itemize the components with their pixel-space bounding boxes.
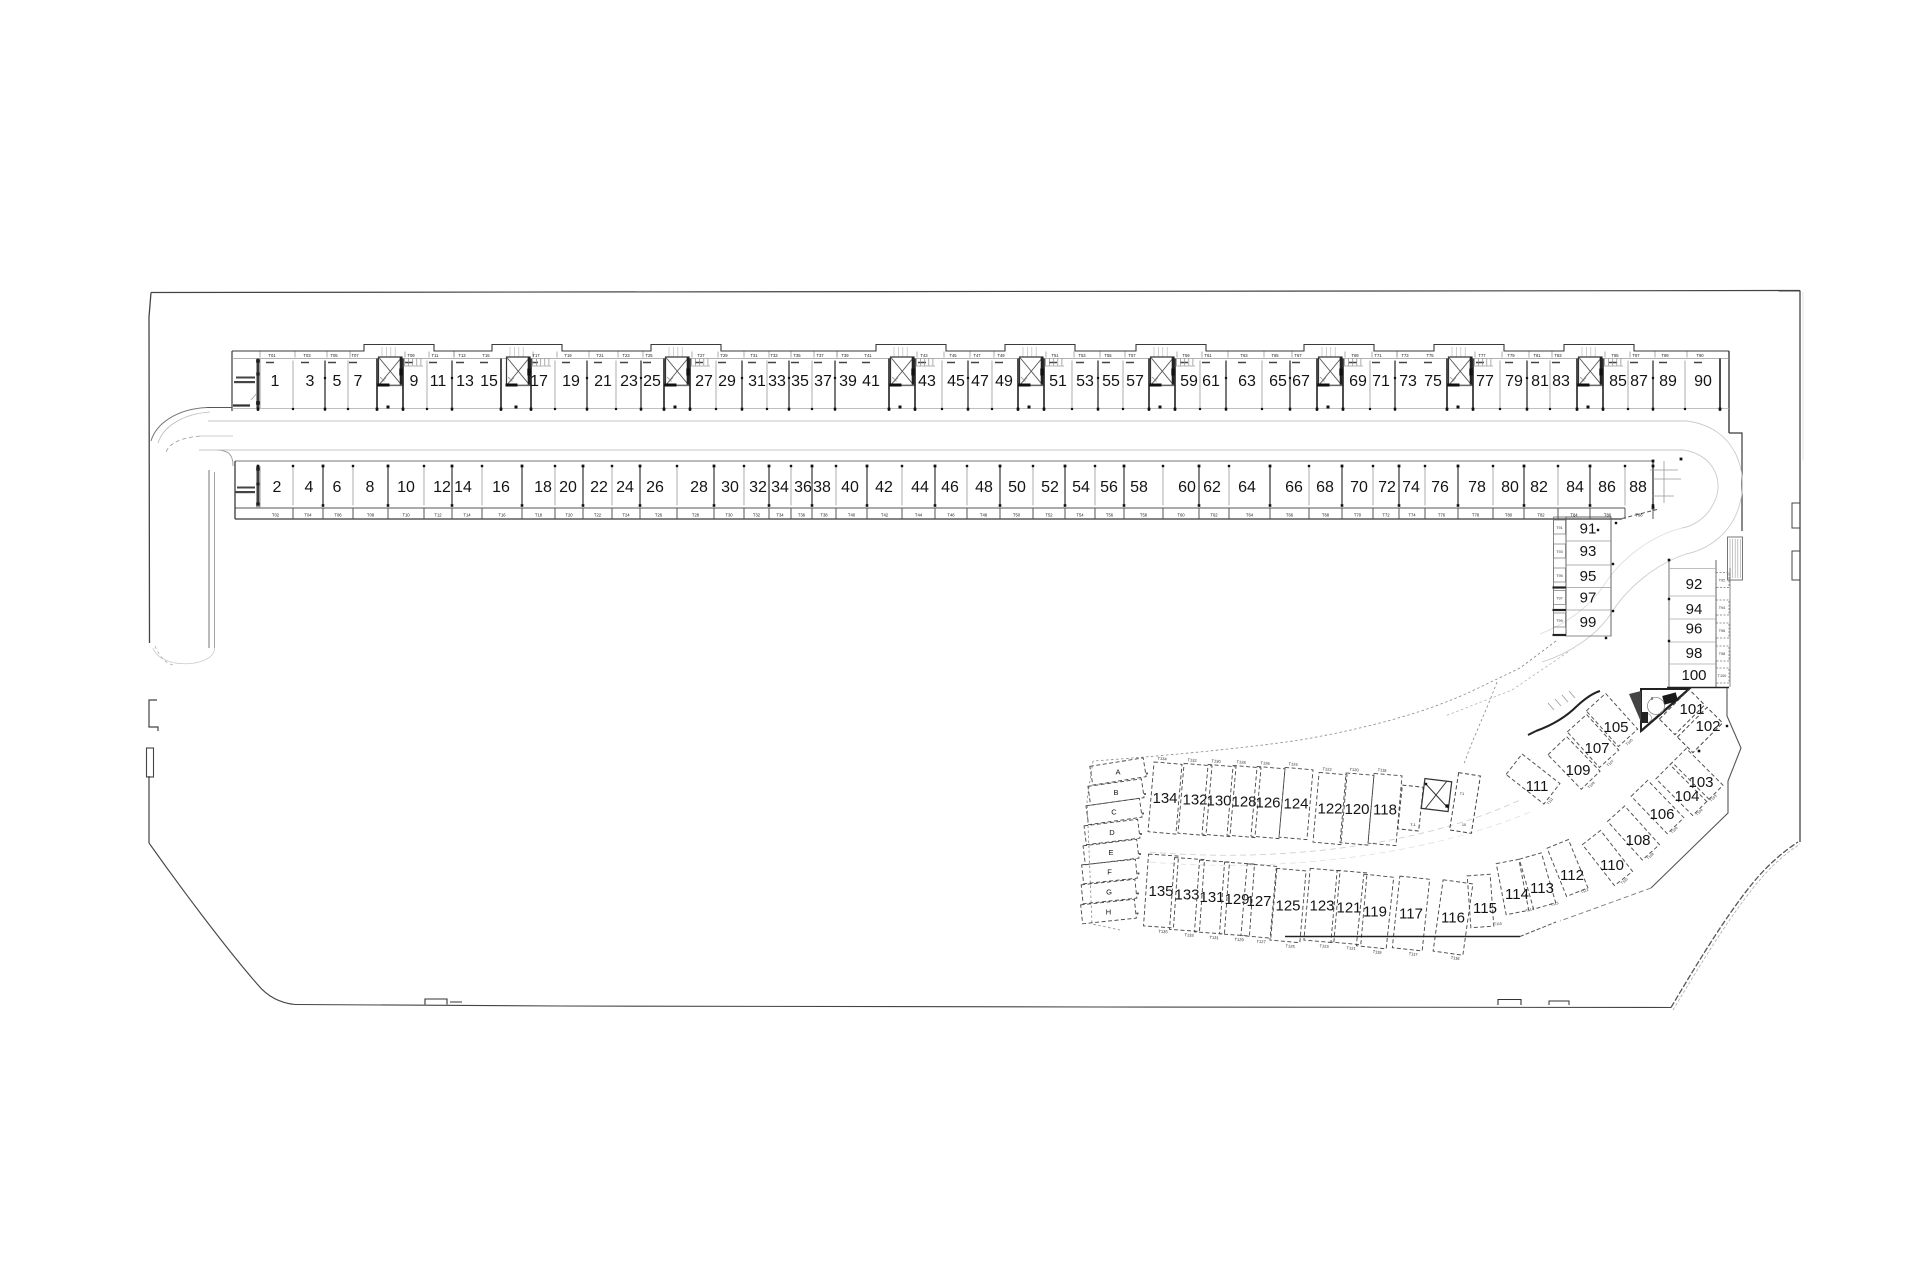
- svg-text:G: G: [1106, 888, 1112, 897]
- svg-text:T125: T125: [1285, 943, 1295, 949]
- svg-text:T81: T81: [1533, 353, 1541, 358]
- svg-text:33: 33: [768, 373, 786, 390]
- svg-text:121: 121: [1336, 900, 1361, 917]
- svg-text:T29: T29: [720, 353, 728, 358]
- svg-text:T92: T92: [1719, 579, 1726, 583]
- svg-text:T75: T75: [1426, 353, 1434, 358]
- svg-text:T46: T46: [947, 513, 955, 518]
- svg-text:T40: T40: [848, 513, 856, 518]
- svg-text:C: C: [1111, 808, 1117, 817]
- svg-text:T124: T124: [1288, 761, 1298, 767]
- svg-text:49: 49: [995, 373, 1013, 390]
- svg-text:54: 54: [1072, 479, 1090, 496]
- svg-text:71: 71: [1372, 373, 1390, 390]
- svg-text:T43: T43: [920, 353, 928, 358]
- svg-text:75: 75: [1424, 373, 1442, 390]
- svg-text:31: 31: [748, 373, 766, 390]
- svg-text:44: 44: [911, 479, 929, 496]
- svg-text:19: 19: [562, 373, 580, 390]
- svg-text:T80: T80: [1505, 513, 1513, 518]
- svg-text:T06: T06: [334, 513, 342, 518]
- svg-text:T123: T123: [1319, 943, 1329, 949]
- svg-text:32: 32: [749, 479, 767, 496]
- svg-text:35: 35: [791, 373, 809, 390]
- svg-text:T71: T71: [1374, 353, 1382, 358]
- svg-text:T59: T59: [1182, 353, 1190, 358]
- svg-text:65: 65: [1269, 373, 1287, 390]
- svg-text:T56: T56: [1106, 513, 1114, 518]
- svg-text:T02: T02: [272, 513, 280, 518]
- svg-text:94: 94: [1686, 601, 1703, 618]
- svg-text:T82: T82: [1537, 513, 1545, 518]
- svg-text:T32: T32: [753, 513, 761, 518]
- svg-text:T38: T38: [820, 513, 828, 518]
- svg-text:36: 36: [794, 479, 812, 496]
- svg-text:106: 106: [1649, 806, 1674, 823]
- svg-text:T78: T78: [1472, 513, 1480, 518]
- svg-text:T115: T115: [1494, 922, 1502, 927]
- svg-text:4: 4: [305, 479, 314, 496]
- svg-text:86: 86: [1598, 479, 1616, 496]
- svg-text:26: 26: [646, 479, 664, 496]
- svg-text:87: 87: [1630, 373, 1648, 390]
- svg-text:18: 18: [534, 479, 552, 496]
- svg-text:T24: T24: [622, 513, 630, 518]
- svg-text:T07: T07: [351, 353, 359, 358]
- svg-text:T62: T62: [1210, 513, 1218, 518]
- svg-text:30: 30: [721, 479, 739, 496]
- svg-text:28: 28: [690, 479, 708, 496]
- svg-text:101: 101: [1679, 701, 1704, 718]
- svg-text:66: 66: [1285, 479, 1303, 496]
- svg-text:T121: T121: [1346, 945, 1356, 951]
- svg-text:25: 25: [643, 373, 661, 390]
- svg-text:61: 61: [1202, 373, 1220, 390]
- svg-text:107: 107: [1584, 740, 1609, 757]
- svg-text:64: 64: [1238, 479, 1256, 496]
- svg-text:T52: T52: [1045, 513, 1053, 518]
- svg-text:88: 88: [1629, 479, 1647, 496]
- svg-text:T36: T36: [798, 513, 806, 518]
- svg-text:T44: T44: [915, 513, 923, 518]
- svg-text:126: 126: [1255, 795, 1280, 812]
- svg-text:119: 119: [1363, 904, 1387, 921]
- svg-text:T53: T53: [1078, 353, 1086, 358]
- svg-text:73: 73: [1399, 373, 1417, 390]
- svg-text:115: 115: [1473, 900, 1497, 917]
- svg-text:13: 13: [456, 373, 474, 390]
- svg-text:118: 118: [1373, 802, 1397, 819]
- svg-text:20: 20: [559, 479, 577, 496]
- svg-text:24: 24: [616, 479, 634, 496]
- svg-text:T129: T129: [1234, 937, 1244, 943]
- svg-text:5: 5: [333, 373, 342, 390]
- svg-text:111: 111: [1526, 778, 1549, 795]
- svg-text:135: 135: [1148, 883, 1173, 900]
- svg-text:117: 117: [1399, 906, 1423, 923]
- svg-text:15: 15: [480, 373, 498, 390]
- svg-text:T30: T30: [725, 513, 733, 518]
- svg-text:109: 109: [1565, 762, 1590, 779]
- svg-text:120: 120: [1344, 801, 1369, 818]
- svg-text:T27: T27: [697, 353, 705, 358]
- svg-text:10: 10: [1462, 823, 1466, 827]
- svg-text:T85: T85: [1611, 353, 1619, 358]
- svg-text:T47: T47: [973, 353, 981, 358]
- svg-text:T05: T05: [330, 353, 338, 358]
- svg-text:112: 112: [1560, 867, 1584, 884]
- svg-text:3: 3: [306, 373, 315, 390]
- svg-text:113: 113: [1530, 880, 1554, 897]
- svg-text:84: 84: [1566, 479, 1584, 496]
- svg-text:27: 27: [695, 373, 713, 390]
- svg-text:T94: T94: [1719, 606, 1726, 610]
- svg-text:T50: T50: [1013, 513, 1021, 518]
- svg-text:T76: T76: [1438, 513, 1446, 518]
- svg-text:70: 70: [1350, 479, 1368, 496]
- svg-text:T89: T89: [1661, 353, 1669, 358]
- svg-text:45: 45: [947, 373, 965, 390]
- svg-text:97: 97: [1580, 590, 1597, 607]
- svg-text:90: 90: [1694, 373, 1712, 390]
- svg-text:T96: T96: [1719, 629, 1726, 633]
- svg-text:T31: T31: [750, 353, 758, 358]
- svg-text:17: 17: [530, 373, 548, 390]
- svg-text:T91: T91: [1556, 526, 1563, 530]
- svg-text:T126: T126: [1260, 760, 1270, 766]
- svg-text:47: 47: [971, 373, 989, 390]
- svg-text:76: 76: [1431, 479, 1449, 496]
- svg-text:T120: T120: [1349, 767, 1359, 773]
- svg-text:99: 99: [1580, 614, 1597, 631]
- svg-text:39: 39: [839, 373, 857, 390]
- svg-text:T57: T57: [1128, 353, 1136, 358]
- svg-text:80: 80: [1501, 479, 1519, 496]
- svg-text:T77: T77: [1478, 353, 1486, 358]
- svg-text:22: 22: [590, 479, 608, 496]
- svg-text:128: 128: [1231, 794, 1256, 811]
- svg-text:110: 110: [1600, 857, 1624, 874]
- svg-text:T37: T37: [816, 353, 824, 358]
- svg-text:T122: T122: [1322, 766, 1332, 772]
- svg-text:T72: T72: [1382, 513, 1390, 518]
- svg-text:T12: T12: [434, 513, 442, 518]
- svg-text:T14: T14: [463, 513, 471, 518]
- svg-text:37: 37: [814, 373, 832, 390]
- svg-text:96: 96: [1686, 621, 1703, 638]
- svg-text:21: 21: [594, 373, 612, 390]
- svg-text:T64: T64: [1246, 513, 1254, 518]
- svg-text:81: 81: [1531, 373, 1549, 390]
- svg-text:T1: T1: [1460, 792, 1464, 796]
- svg-text:123: 123: [1309, 898, 1334, 915]
- svg-text:50: 50: [1008, 479, 1026, 496]
- svg-text:T119: T119: [1373, 949, 1383, 955]
- svg-text:72: 72: [1378, 479, 1396, 496]
- svg-text:92: 92: [1686, 576, 1703, 593]
- svg-text:T19: T19: [564, 353, 572, 358]
- svg-text:T67: T67: [1294, 353, 1302, 358]
- svg-text:T132: T132: [1187, 757, 1197, 763]
- svg-text:59: 59: [1180, 373, 1198, 390]
- svg-text:T17: T17: [532, 353, 540, 358]
- svg-text:23: 23: [620, 373, 638, 390]
- svg-text:T88: T88: [1635, 513, 1643, 518]
- svg-text:T100: T100: [1718, 674, 1727, 678]
- svg-text:100: 100: [1681, 667, 1706, 684]
- svg-text:T-1: T-1: [1410, 822, 1417, 827]
- svg-text:83: 83: [1552, 373, 1570, 390]
- svg-text:T70: T70: [1354, 513, 1362, 518]
- svg-text:79: 79: [1505, 373, 1523, 390]
- svg-text:95: 95: [1580, 568, 1597, 585]
- svg-text:85: 85: [1609, 373, 1627, 390]
- svg-text:T74: T74: [1408, 513, 1416, 518]
- svg-text:133: 133: [1174, 887, 1199, 904]
- svg-text:67: 67: [1292, 373, 1310, 390]
- svg-text:T33: T33: [770, 353, 778, 358]
- svg-text:T48: T48: [980, 513, 988, 518]
- svg-text:T28: T28: [692, 513, 700, 518]
- svg-text:T21: T21: [596, 353, 604, 358]
- svg-text:A: A: [1115, 768, 1120, 777]
- svg-text:42: 42: [875, 479, 893, 496]
- svg-text:78: 78: [1468, 479, 1486, 496]
- svg-text:T08: T08: [367, 513, 375, 518]
- svg-text:T09: T09: [407, 353, 415, 358]
- svg-text:T18: T18: [535, 513, 543, 518]
- svg-text:T61: T61: [1204, 353, 1212, 358]
- svg-text:93: 93: [1580, 543, 1597, 560]
- svg-text:116: 116: [1441, 910, 1465, 927]
- svg-text:T01: T01: [268, 353, 276, 358]
- svg-text:T135: T135: [1158, 929, 1168, 935]
- svg-text:T15: T15: [482, 353, 490, 358]
- svg-text:51: 51: [1049, 373, 1067, 390]
- svg-text:T42: T42: [881, 513, 889, 518]
- svg-text:62: 62: [1203, 479, 1221, 496]
- svg-text:T55: T55: [1104, 353, 1112, 358]
- svg-text:T25: T25: [645, 353, 653, 358]
- svg-text:T13: T13: [458, 353, 466, 358]
- svg-text:T130: T130: [1211, 758, 1221, 764]
- svg-text:T127: T127: [1256, 939, 1266, 945]
- svg-text:T54: T54: [1076, 513, 1084, 518]
- svg-text:69: 69: [1349, 373, 1367, 390]
- svg-text:T04: T04: [304, 513, 312, 518]
- svg-text:12: 12: [433, 479, 451, 496]
- svg-text:56: 56: [1100, 479, 1118, 496]
- svg-text:16: 16: [492, 479, 510, 496]
- svg-text:T23: T23: [622, 353, 630, 358]
- svg-text:T60: T60: [1177, 513, 1185, 518]
- svg-text:T133: T133: [1184, 932, 1194, 938]
- svg-text:T131: T131: [1209, 935, 1219, 941]
- svg-text:T118: T118: [1378, 767, 1388, 773]
- svg-text:T63: T63: [1240, 353, 1248, 358]
- svg-text:102: 102: [1695, 718, 1720, 735]
- svg-text:57: 57: [1126, 373, 1144, 390]
- svg-text:T10: T10: [402, 513, 410, 518]
- svg-text:T128: T128: [1236, 759, 1246, 765]
- svg-text:T11: T11: [432, 353, 440, 358]
- svg-text:134: 134: [1152, 790, 1177, 807]
- svg-text:91: 91: [1580, 521, 1597, 538]
- svg-text:T16: T16: [498, 513, 506, 518]
- svg-text:T26: T26: [655, 513, 663, 518]
- svg-text:53: 53: [1076, 373, 1094, 390]
- svg-text:52: 52: [1041, 479, 1059, 496]
- svg-text:T134: T134: [1157, 756, 1167, 762]
- svg-text:132: 132: [1182, 792, 1207, 809]
- svg-text:108: 108: [1625, 832, 1650, 849]
- svg-text:T03: T03: [303, 353, 311, 358]
- svg-text:T51: T51: [1051, 353, 1059, 358]
- svg-text:T97: T97: [1556, 597, 1563, 601]
- svg-text:T93: T93: [1556, 550, 1563, 554]
- svg-text:T35: T35: [793, 353, 801, 358]
- svg-text:29: 29: [718, 373, 736, 390]
- svg-text:T68: T68: [1322, 513, 1330, 518]
- svg-text:T69: T69: [1351, 353, 1359, 358]
- svg-text:T90: T90: [1696, 353, 1704, 358]
- svg-text:T117: T117: [1409, 951, 1419, 957]
- svg-text:11: 11: [430, 373, 447, 390]
- svg-text:7: 7: [354, 373, 363, 390]
- svg-text:82: 82: [1530, 479, 1548, 496]
- svg-text:T87: T87: [1632, 353, 1640, 358]
- svg-text:48: 48: [975, 479, 993, 496]
- svg-text:T39: T39: [841, 353, 849, 358]
- svg-text:131: 131: [1199, 889, 1224, 906]
- svg-text:10: 10: [397, 479, 415, 496]
- svg-text:T22: T22: [594, 513, 602, 518]
- svg-text:F: F: [1107, 868, 1112, 877]
- svg-text:63: 63: [1238, 373, 1256, 390]
- svg-text:T95: T95: [1556, 574, 1563, 578]
- svg-text:H: H: [1106, 908, 1111, 917]
- svg-text:T45: T45: [949, 353, 957, 358]
- svg-text:T99: T99: [1556, 619, 1563, 623]
- svg-text:T83: T83: [1554, 353, 1562, 358]
- svg-text:T34: T34: [776, 513, 784, 518]
- svg-text:T65: T65: [1271, 353, 1279, 358]
- svg-text:43: 43: [918, 373, 936, 390]
- svg-text:E: E: [1108, 848, 1113, 857]
- svg-text:T79: T79: [1507, 353, 1515, 358]
- svg-text:125: 125: [1275, 898, 1300, 915]
- svg-text:74: 74: [1402, 479, 1420, 496]
- svg-text:98: 98: [1686, 645, 1703, 662]
- svg-text:41: 41: [862, 373, 880, 390]
- svg-text:T66: T66: [1286, 513, 1294, 518]
- svg-text:104: 104: [1674, 788, 1699, 805]
- svg-text:114: 114: [1505, 886, 1529, 903]
- svg-text:B: B: [1113, 788, 1118, 797]
- svg-text:122: 122: [1317, 801, 1342, 818]
- svg-text:T58: T58: [1140, 513, 1148, 518]
- svg-text:T20: T20: [565, 513, 573, 518]
- svg-text:127: 127: [1246, 893, 1271, 910]
- svg-text:124: 124: [1283, 796, 1308, 813]
- svg-text:14: 14: [454, 479, 472, 496]
- svg-text:68: 68: [1316, 479, 1334, 496]
- svg-text:77: 77: [1476, 373, 1494, 390]
- svg-text:89: 89: [1659, 373, 1677, 390]
- svg-text:1: 1: [271, 373, 280, 390]
- svg-text:60: 60: [1178, 479, 1196, 496]
- svg-text:130: 130: [1206, 793, 1231, 810]
- svg-text:T73: T73: [1401, 353, 1409, 358]
- svg-text:T41: T41: [864, 353, 872, 358]
- svg-text:105: 105: [1603, 719, 1628, 736]
- svg-text:40: 40: [841, 479, 859, 496]
- svg-text:6: 6: [333, 479, 342, 496]
- svg-text:38: 38: [813, 479, 831, 496]
- svg-text:46: 46: [941, 479, 959, 496]
- svg-text:9: 9: [410, 373, 419, 390]
- svg-text:2: 2: [273, 479, 282, 496]
- svg-text:T98: T98: [1719, 652, 1726, 656]
- svg-text:58: 58: [1130, 479, 1148, 496]
- svg-text:8: 8: [366, 479, 375, 496]
- svg-text:34: 34: [771, 479, 789, 496]
- svg-text:T49: T49: [997, 353, 1005, 358]
- svg-text:D: D: [1109, 828, 1115, 837]
- svg-text:55: 55: [1102, 373, 1120, 390]
